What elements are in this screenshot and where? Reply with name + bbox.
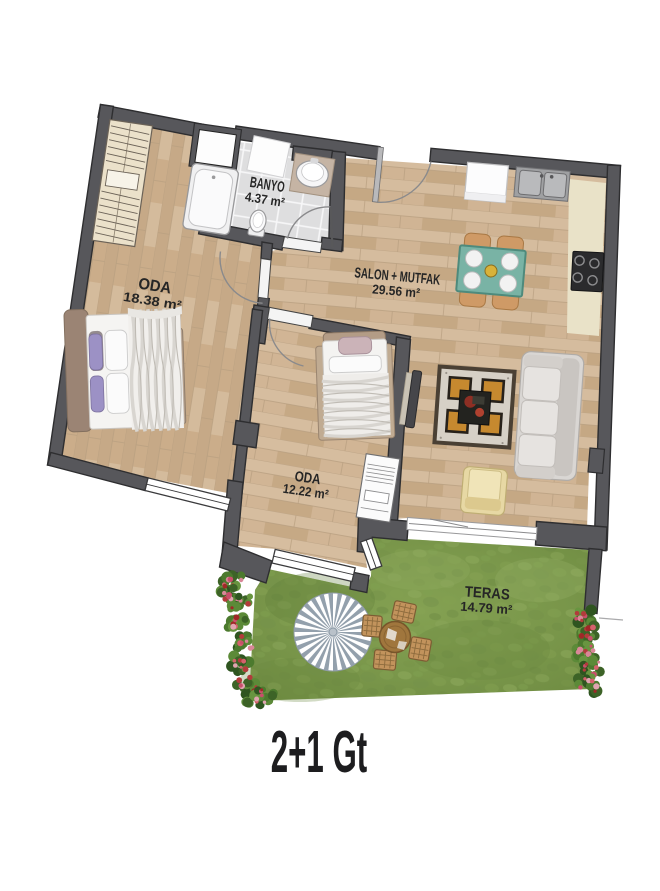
svg-text:2+1 Gt: 2+1 Gt bbox=[271, 720, 368, 786]
